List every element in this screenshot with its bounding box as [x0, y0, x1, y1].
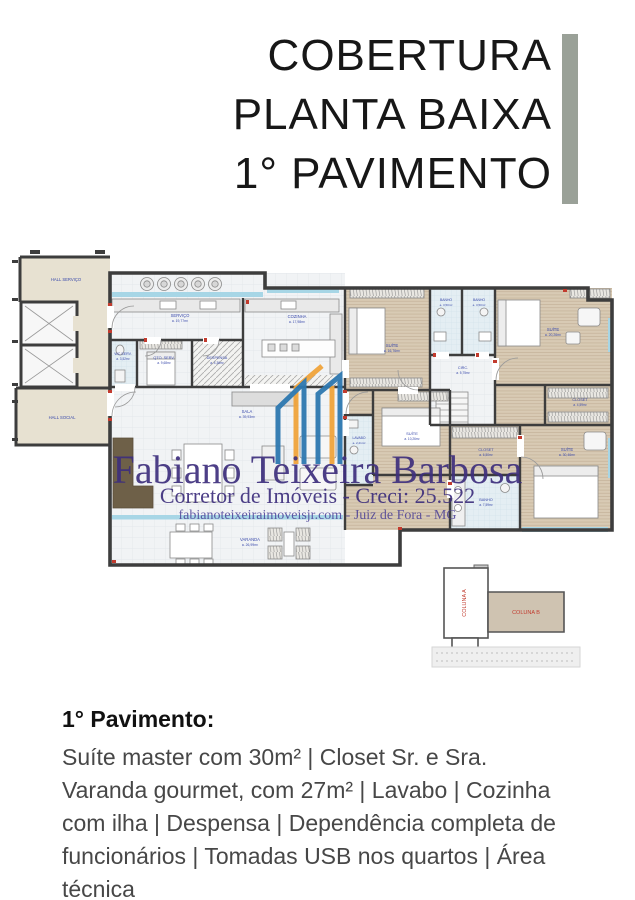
- svg-text:BANHO: BANHO: [440, 298, 452, 302]
- title-line-3: 1° PAVIMENTO: [0, 144, 552, 203]
- svg-text:a. 10,26m²: a. 10,26m²: [404, 437, 419, 441]
- description-body: Suíte master com 30m² | Closet Sr. e Sra…: [62, 741, 574, 900]
- elevator-shafts: [21, 302, 79, 387]
- svg-text:a. 3,52m²: a. 3,52m²: [116, 357, 129, 361]
- label-coluna-b: COLUNA B: [512, 610, 540, 616]
- svg-text:a. 16,76m²: a. 16,76m²: [384, 349, 401, 353]
- svg-text:QTO. SERV.: QTO. SERV.: [153, 356, 174, 360]
- svg-text:SERVIÇO: SERVIÇO: [171, 313, 191, 318]
- svg-text:a. 4,59m²: a. 4,59m²: [573, 403, 586, 407]
- description-block: 1° Pavimento: Suíte master com 30m² | Cl…: [62, 706, 574, 900]
- svg-text:a. 9,68m²: a. 9,68m²: [157, 361, 170, 365]
- watermark-site: fabianoteixeiraimoveisjr.com - Juiz de F…: [0, 508, 635, 524]
- title-accent-bar: [562, 34, 578, 204]
- label-coluna-a: COLUNA A: [462, 589, 468, 617]
- svg-text:a. 2,21m²: a. 2,21m²: [353, 441, 366, 445]
- svg-text:LAVABO: LAVABO: [352, 436, 365, 440]
- label-hall-social: HALL SOCIAL: [49, 415, 77, 420]
- svg-text:VARANDA: VARANDA: [240, 537, 260, 542]
- svg-text:a. 3,50m²: a. 3,50m²: [440, 303, 453, 307]
- svg-text:CLOSET: CLOSET: [572, 398, 588, 402]
- svg-text:a. 17,98m²: a. 17,98m²: [289, 320, 306, 324]
- svg-text:SUÍTE: SUÍTE: [386, 343, 399, 348]
- title-line-1: COBERTURA: [0, 26, 552, 85]
- title-line-2: PLANTA BAIXA: [0, 85, 552, 144]
- svg-text:a. 4,36m²: a. 4,36m²: [210, 361, 223, 365]
- svg-text:a. 19,77m²: a. 19,77m²: [172, 319, 189, 323]
- description-heading: 1° Pavimento:: [62, 706, 574, 733]
- svg-text:COZINHA: COZINHA: [288, 314, 307, 319]
- key-plan: COLUNA A COLUNA B: [432, 565, 580, 667]
- watermark-role: Corretor de Imóveis - Creci: 25.522: [0, 484, 635, 508]
- svg-text:BANHO: BANHO: [473, 298, 485, 302]
- svg-text:SUÍTE: SUÍTE: [547, 327, 560, 332]
- svg-text:DESPENSA: DESPENSA: [207, 356, 228, 360]
- svg-text:SUÍTE: SUÍTE: [406, 431, 418, 436]
- label-hall-servico: HALL SERVIÇO: [51, 277, 82, 282]
- page-title: COBERTURA PLANTA BAIXA 1° PAVIMENTO: [0, 26, 552, 203]
- street-strip-icon: [432, 647, 580, 667]
- svg-text:a. 26,99m²: a. 26,99m²: [242, 543, 259, 547]
- svg-text:a. 5,75m²: a. 5,75m²: [456, 371, 469, 375]
- svg-text:a. 3,50m²: a. 3,50m²: [473, 303, 486, 307]
- svg-text:WC SERV.: WC SERV.: [114, 352, 131, 356]
- svg-text:SALA: SALA: [242, 409, 253, 414]
- svg-text:CIRC.: CIRC.: [458, 366, 468, 370]
- listing-page: COBERTURA PLANTA BAIXA 1° PAVIMENTO: [0, 0, 635, 900]
- svg-text:a. 39,93m²: a. 39,93m²: [239, 415, 256, 419]
- svg-text:a. 20,26m²: a. 20,26m²: [545, 333, 562, 337]
